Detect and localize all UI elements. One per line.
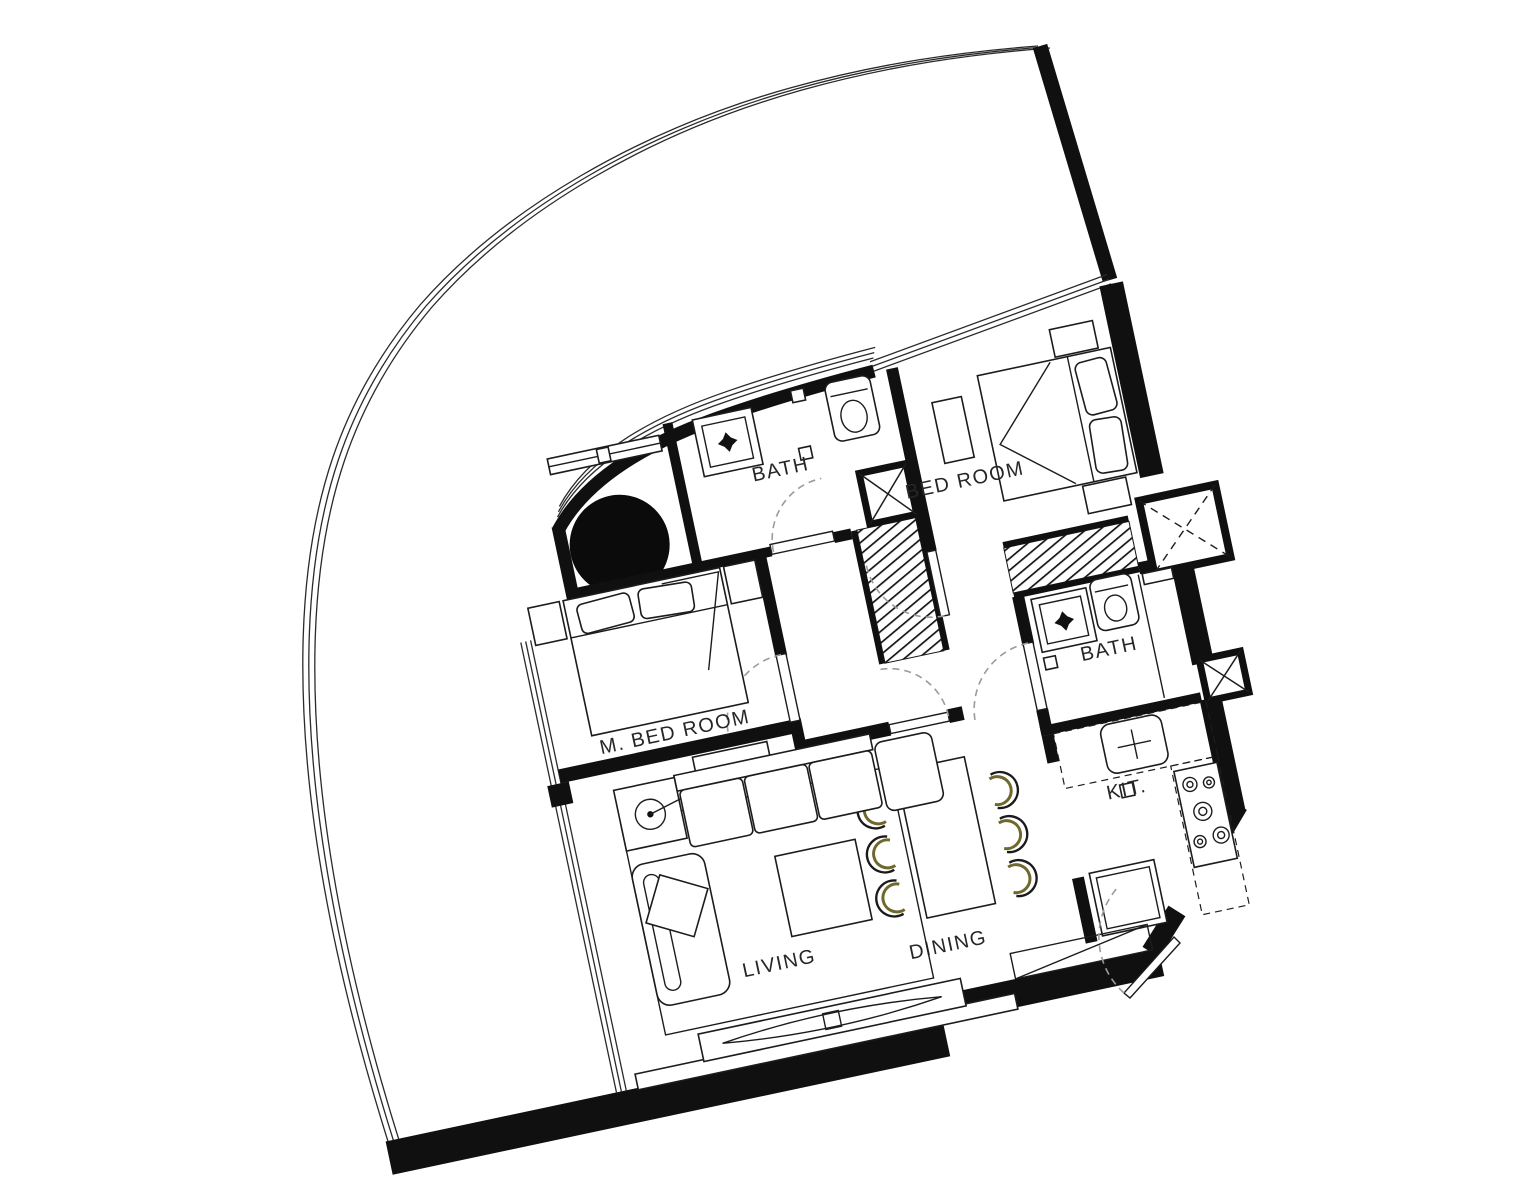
accessory: [790, 388, 805, 402]
duct-shaft2-icon: [1199, 651, 1249, 701]
outer-corner-wall: [1040, 46, 1110, 280]
coffee-table: [775, 839, 872, 936]
bath1-door: [759, 478, 835, 554]
dresser: [932, 397, 974, 464]
apartment-plan: BATH BED ROOM M. BED ROOM: [240, 262, 1319, 1175]
toilet-icon: [824, 374, 881, 442]
chaise-chair: [630, 851, 732, 1007]
floorplan-drawing: BATH BED ROOM M. BED ROOM: [0, 0, 1533, 1204]
bottom-wall-left: [386, 1023, 951, 1175]
nightstand: [723, 560, 762, 604]
armchair: [873, 731, 944, 812]
shower-divider: [1138, 575, 1164, 698]
kitchen-label: KIT.: [1105, 775, 1149, 805]
elevator-shaft-icon: [1139, 485, 1231, 574]
toilet-icon: [1088, 572, 1140, 632]
shelf-bracket: [596, 447, 611, 463]
accessory: [1043, 656, 1057, 670]
chair-icon: [988, 769, 1021, 810]
floorplan-page: BATH BED ROOM M. BED ROOM: [0, 0, 1533, 1204]
chair-icon: [1007, 857, 1040, 898]
bath2-door: [961, 642, 1047, 724]
living-label: LIVING: [740, 945, 818, 982]
chair-icon: [864, 835, 897, 876]
fridge-icon: [1089, 860, 1167, 936]
chair-icon: [998, 813, 1031, 854]
kitchen-sink-icon: [1099, 713, 1170, 775]
dining-label: DINING: [907, 926, 989, 964]
chair-icon: [873, 879, 906, 920]
nightstand: [528, 602, 567, 646]
